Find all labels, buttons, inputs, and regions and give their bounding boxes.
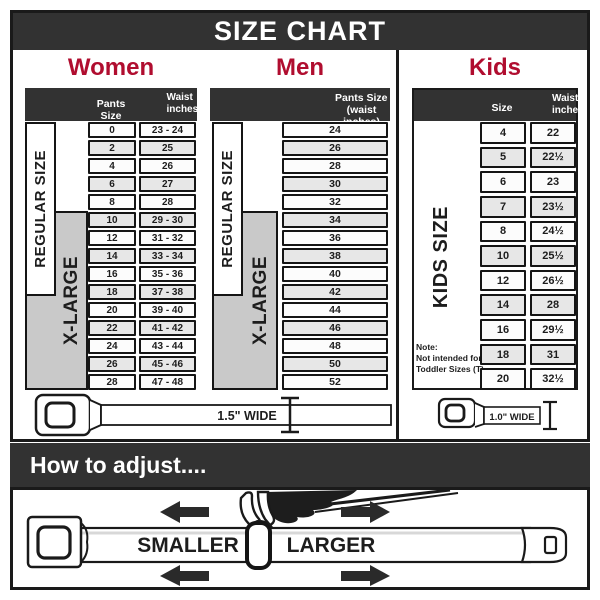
- men-size-cell: 52: [282, 374, 388, 390]
- kids-heading: Kids: [412, 53, 578, 83]
- kids-size-cell: 20: [480, 368, 526, 390]
- men-size-cell: 40: [282, 266, 388, 282]
- kids-size-table: 422522½623723½824½1025½1226½14281629½183…: [480, 122, 576, 390]
- kids-size-label: KIDS SIZE: [424, 150, 458, 365]
- kids-waist-cell: 31: [530, 344, 576, 366]
- women-pants-size-cell: 10: [88, 212, 136, 228]
- width-marker-icon: [543, 402, 557, 429]
- women-waist-cell: 37 - 38: [139, 284, 196, 300]
- men-size-cell: 34: [282, 212, 388, 228]
- kids-col-size: Size: [478, 102, 526, 114]
- belt-strap: 1.5" WIDE: [101, 405, 391, 425]
- title-bar: SIZE CHART: [13, 13, 587, 50]
- kids-size-cell: 16: [480, 319, 526, 341]
- men-col-pants-size: Pants Size(waist inches): [282, 92, 388, 104]
- men-size-cell: 28: [282, 158, 388, 174]
- women-waist-cell: 35 - 36: [139, 266, 196, 282]
- women-table-header: Pants Size Waistinches: [25, 88, 197, 121]
- kids-size-cell: 4: [480, 122, 526, 144]
- women-waist-cell: 33 - 34: [139, 248, 196, 264]
- kids-note: Note:Not intended forToddler Sizes (T): [416, 342, 488, 375]
- belt-tip-icon: [522, 528, 566, 562]
- women-pants-size-cell: 14: [88, 248, 136, 264]
- women-waist-cell: 25: [139, 140, 196, 156]
- kids-waist-cell: 23½: [530, 196, 576, 218]
- smaller-label: SMALLER: [137, 534, 239, 557]
- size-chart-page: SIZE CHART Women Men Kids Pants Size Wai…: [0, 0, 600, 600]
- kids-size-cell: 12: [480, 270, 526, 292]
- women-pants-size-cell: 12: [88, 230, 136, 246]
- women-waist-cell: 23 - 24: [139, 122, 196, 138]
- belt-buckle-icon: [36, 395, 101, 435]
- women-col-waist: Waistinches: [137, 92, 196, 104]
- men-size-cell: 32: [282, 194, 388, 210]
- men-size-cell: 30: [282, 176, 388, 192]
- men-size-cell: 36: [282, 230, 388, 246]
- women-pants-size-cell: 4: [88, 158, 136, 174]
- kids-waist-cell: 24½: [530, 221, 576, 243]
- men-size-cell: 26: [282, 140, 388, 156]
- women-waist-cell: 41 - 42: [139, 320, 196, 336]
- women-heading: Women: [25, 53, 197, 83]
- women-pants-size-cell: 24: [88, 338, 136, 354]
- kids-waist-cell: 29½: [530, 319, 576, 341]
- kids-waist-cell: 32½: [530, 368, 576, 390]
- women-pants-size-cell: 20: [88, 302, 136, 318]
- women-waist-cell: 45 - 46: [139, 356, 196, 372]
- kids-size-cell: 18: [480, 344, 526, 366]
- women-pants-size-cell: 16: [88, 266, 136, 282]
- women-size-table: 023 - 242254266278281029 - 301231 - 3214…: [88, 122, 196, 390]
- men-size-cell: 46: [282, 320, 388, 336]
- women-pants-size-cell: 22: [88, 320, 136, 336]
- women-regular-label: REGULAR SIZE: [25, 122, 56, 296]
- men-size-cell: 48: [282, 338, 388, 354]
- kids-table-header: Size Waistinches: [414, 90, 576, 121]
- belt-keeper-icon: [247, 523, 270, 568]
- adjust-illustration-svg: SMALLER LARGER: [13, 490, 587, 587]
- belt-buckle-icon: [439, 399, 484, 427]
- women-waist-cell: 28: [139, 194, 196, 210]
- kids-size-cell: 14: [480, 294, 526, 316]
- kids-waist-cell: 22½: [530, 147, 576, 169]
- women-pants-size-cell: 8: [88, 194, 136, 210]
- adult-belt-illustration: 1.5" WIDE: [33, 392, 393, 438]
- kids-size-cell: 5: [480, 147, 526, 169]
- kids-belt-illustration: 1.0" WIDE: [437, 394, 572, 432]
- kids-waist-cell: 26½: [530, 270, 576, 292]
- women-waist-cell: 43 - 44: [139, 338, 196, 354]
- women-waist-cell: 26: [139, 158, 196, 174]
- men-size-cell: 38: [282, 248, 388, 264]
- larger-label: LARGER: [287, 534, 376, 557]
- women-pants-size-cell: 2: [88, 140, 136, 156]
- women-waist-cell: 47 - 48: [139, 374, 196, 390]
- kids-size-cell: 7: [480, 196, 526, 218]
- women-pants-size-cell: 26: [88, 356, 136, 372]
- women-pants-size-cell: 0: [88, 122, 136, 138]
- adjust-illustration: SMALLER LARGER: [10, 487, 590, 590]
- kids-waist-cell: 23: [530, 171, 576, 193]
- men-regular-label: REGULAR SIZE: [212, 122, 243, 296]
- kids-size-cell: 8: [480, 221, 526, 243]
- kids-size-cell: 6: [480, 171, 526, 193]
- kids-waist-cell: 28: [530, 294, 576, 316]
- kids-waist-cell: 25½: [530, 245, 576, 267]
- arrow-left-icon: [160, 565, 209, 586]
- women-waist-cell: 29 - 30: [139, 212, 196, 228]
- how-to-adjust-bar: How to adjust....: [10, 443, 590, 487]
- men-heading: Men: [210, 53, 390, 83]
- women-waist-cell: 31 - 32: [139, 230, 196, 246]
- women-pants-size-cell: 6: [88, 176, 136, 192]
- women-waist-cell: 27: [139, 176, 196, 192]
- page-title: SIZE CHART: [214, 16, 386, 47]
- men-table-header: Pants Size(waist inches): [210, 88, 390, 121]
- belt-width-label: 1.0" WIDE: [489, 412, 534, 423]
- men-size-cell: 24: [282, 122, 388, 138]
- men-size-table: 242628303234363840424446485052: [282, 122, 388, 390]
- men-size-cell: 42: [282, 284, 388, 300]
- women-waist-cell: 39 - 40: [139, 302, 196, 318]
- kids-size-cell: 10: [480, 245, 526, 267]
- men-size-cell: 50: [282, 356, 388, 372]
- how-to-adjust-title: How to adjust....: [30, 452, 206, 479]
- belt-strap: 1.0" WIDE: [484, 407, 540, 424]
- kids-waist-cell: 22: [530, 122, 576, 144]
- column-divider: [396, 50, 399, 442]
- men-size-cell: 44: [282, 302, 388, 318]
- belt-buckle-icon: [28, 517, 87, 567]
- arrow-left-icon: [160, 501, 209, 523]
- women-col-pants-size: Pants Size: [85, 98, 137, 122]
- women-pants-size-cell: 18: [88, 284, 136, 300]
- belt-width-label: 1.5" WIDE: [217, 409, 276, 423]
- arrow-right-icon: [341, 565, 390, 586]
- kids-col-waist: Waistinches: [528, 93, 576, 105]
- women-pants-size-cell: 28: [88, 374, 136, 390]
